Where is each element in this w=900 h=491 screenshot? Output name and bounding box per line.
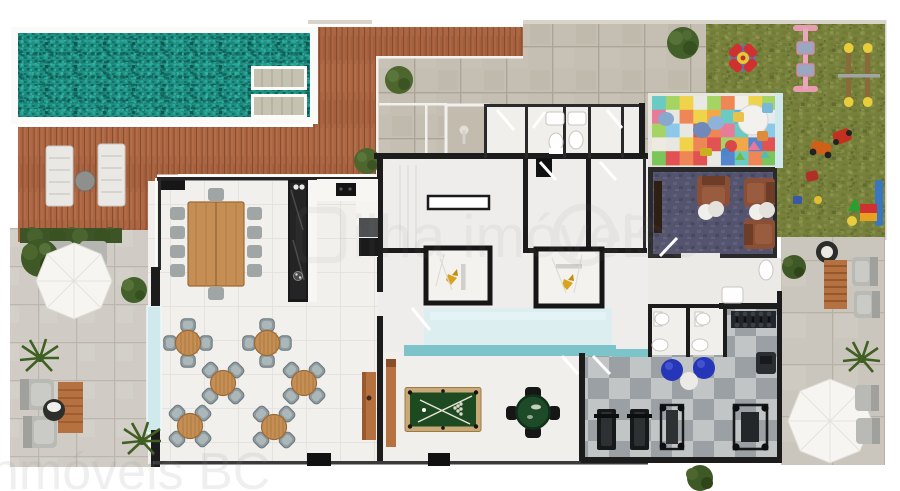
svg-text:hmóveis BC: hmóveis BC: [0, 443, 270, 491]
svg-text:ilha imóveis: ilha imóveis: [352, 203, 665, 270]
svg-text:BC: BC: [620, 203, 703, 270]
